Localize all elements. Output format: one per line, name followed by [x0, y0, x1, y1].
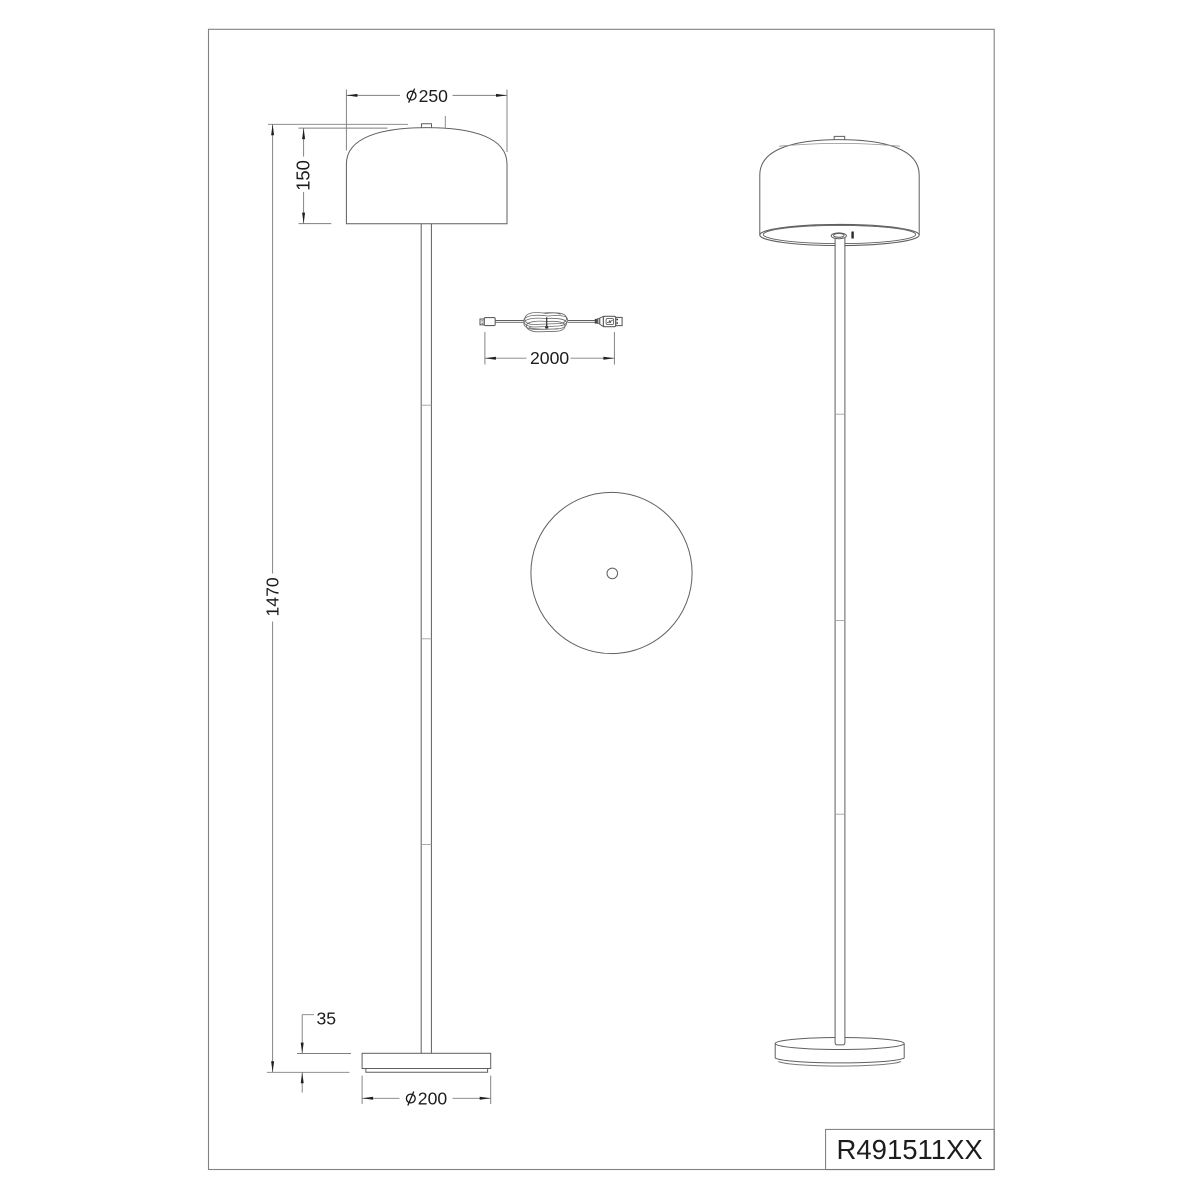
svg-text:2000: 2000	[530, 348, 569, 368]
svg-text:150: 150	[293, 160, 314, 191]
svg-text:200: 200	[418, 1089, 448, 1109]
svg-text:1470: 1470	[263, 577, 283, 616]
svg-text:35: 35	[317, 1008, 337, 1028]
svg-text:R491511XX: R491511XX	[837, 1134, 983, 1165]
svg-text:250: 250	[419, 86, 449, 106]
